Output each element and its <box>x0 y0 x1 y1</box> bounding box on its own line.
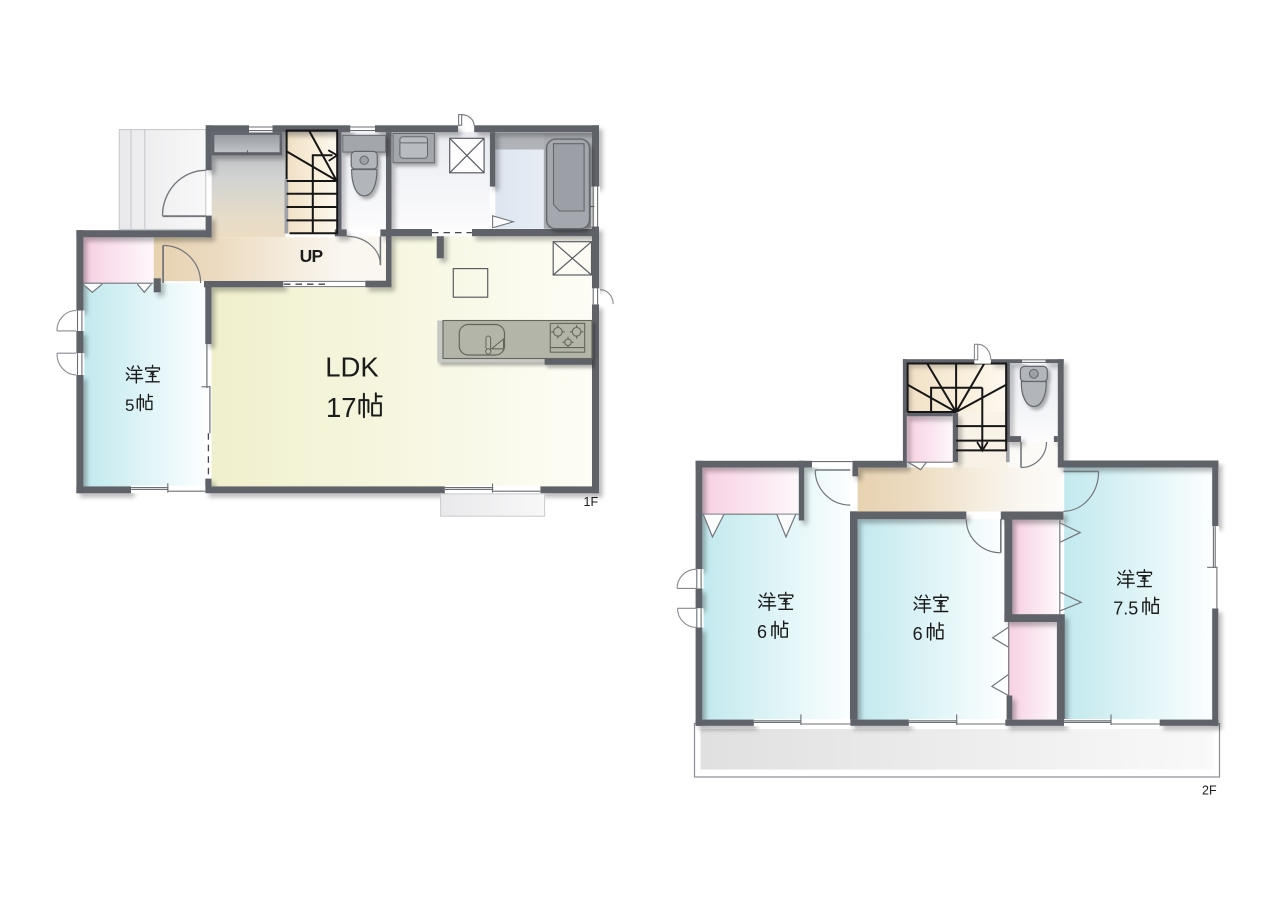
svg-text:17: 17 <box>326 392 357 423</box>
svg-text:1F: 1F <box>584 495 599 509</box>
svg-text:2F: 2F <box>1202 784 1217 798</box>
svg-text:7.5: 7.5 <box>1113 599 1138 619</box>
svg-text:6: 6 <box>913 624 923 644</box>
svg-text:6: 6 <box>757 622 767 642</box>
svg-text:UP: UP <box>300 246 324 266</box>
svg-text:LDK: LDK <box>325 352 379 383</box>
svg-text:5: 5 <box>125 396 134 415</box>
